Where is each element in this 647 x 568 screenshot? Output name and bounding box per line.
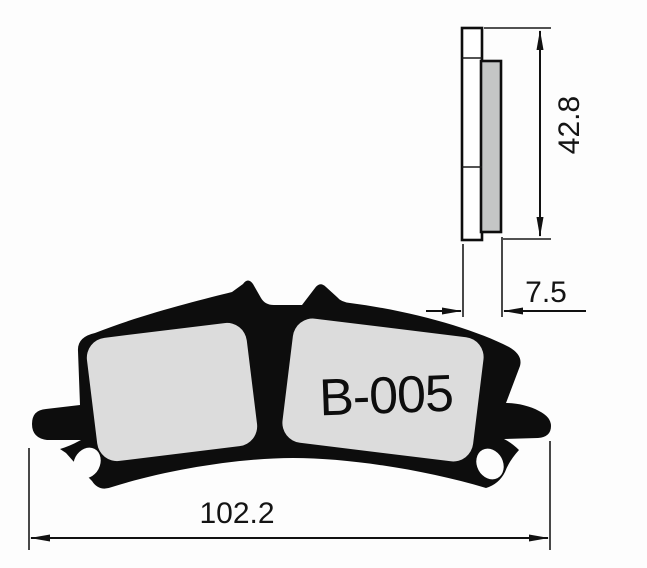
- backing-plate: [462, 28, 482, 240]
- side-view: [462, 28, 501, 240]
- friction-surface-left: [85, 321, 260, 464]
- thickness-dimension-label: 7.5: [525, 276, 567, 309]
- width-dimension-label: 102.2: [199, 497, 274, 530]
- friction-material: [481, 61, 501, 232]
- part-number-label: B-005: [318, 365, 454, 428]
- front-view: B-005: [32, 281, 551, 489]
- brake-pad-technical-drawing: 42.8 7.5 B-005: [0, 0, 647, 568]
- dimension-thickness: 7.5: [426, 237, 586, 317]
- drawing-canvas: 42.8 7.5 B-005: [0, 0, 647, 568]
- height-dimension-label: 42.8: [553, 96, 586, 154]
